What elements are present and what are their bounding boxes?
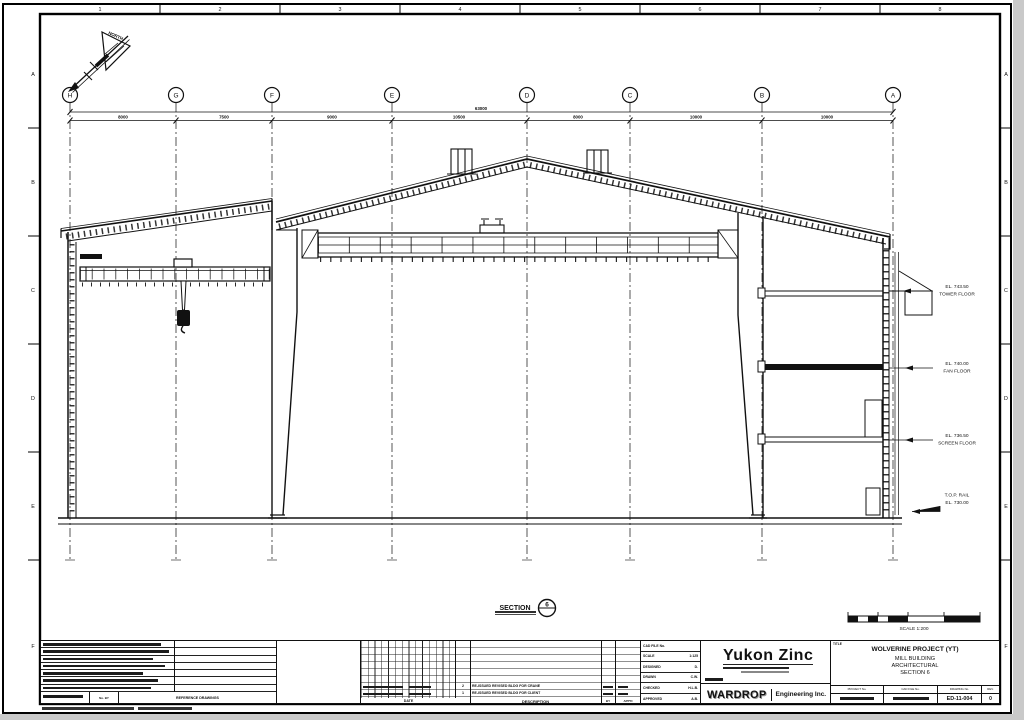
right-letter: F (1004, 644, 1008, 650)
rev-date-entry (409, 693, 431, 695)
north-label: NORTH (108, 30, 124, 41)
left-letter: E (31, 504, 35, 510)
drawing-no-header: DRAWING No. (937, 686, 981, 693)
note-row (41, 670, 276, 677)
cad-no-header: CAD FILE No. (883, 686, 937, 693)
note-row (41, 656, 276, 663)
north-arrow-icon: NORTH (68, 30, 130, 92)
title-block: No. BY REFERENCE DRAWINGS 2 RE-ISSUED RE… (40, 640, 1000, 704)
left-letter: C (31, 288, 35, 294)
top-number: 1 (99, 7, 102, 13)
note-row (41, 663, 276, 670)
grid-bubble-label: F (270, 93, 274, 100)
elevation-label: EL. 743.50 (945, 284, 969, 290)
left-letter: A (31, 72, 35, 78)
top-number: 6 (699, 7, 702, 13)
dimension-lines (68, 109, 896, 124)
elevation-label: T.O.P. RAIL (945, 493, 970, 499)
notes-divider (174, 641, 175, 692)
truss-trolley-icon (480, 219, 504, 233)
top-number: 8 (939, 7, 942, 13)
rev-date-entry (363, 693, 403, 695)
left-letter: D (31, 396, 35, 402)
rev-divider (601, 641, 602, 703)
note-row (41, 685, 276, 692)
info-value: D. (695, 665, 698, 669)
right-letter: E (1004, 504, 1008, 510)
rev-appd-entry (618, 686, 628, 688)
drawing-number: ED-11-004 (937, 694, 981, 705)
description-header: DESCRIPTION (470, 698, 601, 705)
right-letter: A (1004, 72, 1008, 78)
elevation-callouts: EL. 743.50 TOWER FLOOR EL. 740.00 FAN FL… (889, 284, 976, 514)
top-number: 3 (339, 7, 342, 13)
dim-span: 10000 (690, 115, 703, 120)
logo-accent-bar (723, 667, 789, 669)
floor-levels (758, 288, 883, 515)
drawing-title-area: TITLE WOLVERINE PROJECT (YT) MILL BUILDI… (831, 641, 999, 703)
info-value: A.B. (691, 697, 698, 701)
info-label: CHECKED (643, 686, 660, 690)
rev-description: RE-ISSUED REVISED BLDG FOR CRANE (472, 684, 600, 688)
grid-bubble-label: B (760, 93, 764, 100)
rev-by-entry (603, 693, 613, 695)
revision-table: 2 RE-ISSUED REVISED BLDG FOR CRANE 1 RE-… (361, 641, 641, 703)
left-letter: F (31, 644, 35, 650)
section-drawing: 1 2 3 4 5 6 7 8 A B C D E F A B C D E F … (0, 0, 1024, 720)
left-letter: B (31, 180, 35, 186)
rev-divider (615, 641, 616, 703)
company-logo: Yukon Zinc (723, 648, 813, 665)
grid-bubble-label: E (390, 93, 395, 100)
logo-divider (771, 689, 772, 701)
hoist-icon (174, 259, 192, 333)
right-letter: C (1004, 288, 1008, 294)
right-letter: B (1004, 180, 1008, 186)
rev-by-entry (603, 686, 613, 688)
info-label: DRAWN (643, 675, 656, 679)
info-label: SCALE (643, 654, 655, 658)
dim-span: 10000 (821, 115, 834, 120)
revision-number: 0 (981, 694, 999, 705)
firm-logo: WARDROP (707, 689, 767, 701)
drawing-sheet: 1 2 3 4 5 6 7 8 A B C D E F A B C D E F … (0, 0, 1013, 714)
grid-bubble-label: A (891, 93, 896, 100)
rev-divider (470, 641, 471, 703)
project-name: WOLVERINE PROJECT (YT) (831, 646, 999, 653)
date-header: DATE (361, 698, 456, 705)
building-section (58, 149, 932, 524)
tapered-column-left (268, 201, 297, 518)
rev-date-entry (409, 686, 431, 688)
grid-bubble-label: D (525, 93, 530, 100)
note-row (41, 677, 276, 684)
rev-appd-entry (618, 693, 628, 695)
project-no-header: PROJECT No. (831, 686, 883, 693)
roof-vent-icon (583, 150, 612, 173)
grid-bubble-label: C (628, 93, 633, 100)
grid-bubble-label: G (173, 93, 178, 100)
info-value: C.W. (691, 675, 698, 679)
info-label: DESIGNED (643, 665, 661, 669)
rev-header: REV. (981, 686, 999, 693)
dim-span: 9000 (327, 115, 337, 120)
notes-table: No. BY REFERENCE DRAWINGS (41, 641, 277, 703)
note-row (41, 641, 276, 648)
info-label: CAD FILE No. (643, 644, 665, 648)
rev-number: 2 (456, 684, 470, 688)
notes-footer: No. BY REFERENCE DRAWINGS (41, 692, 276, 703)
logo-microtext (705, 678, 723, 681)
elevation-label: SCREEN FLOOR (938, 441, 976, 447)
grid-lines (65, 103, 898, 562)
margin-labels: 1 2 3 4 5 6 7 8 A B C D E F A B C D E F (31, 7, 1008, 650)
appd-header: APP'D (615, 698, 641, 705)
elevation-label: EL. 730.00 (945, 500, 969, 506)
elevation-label: EL. 740.00 (945, 361, 969, 367)
roof-vent-icon (447, 149, 476, 174)
section-marker: SECTION 6 (495, 600, 556, 617)
firm-suffix: Engineering Inc. (776, 691, 827, 698)
grid-bubbles: H G F E D C B A (63, 88, 901, 103)
drawing-title-line: SECTION 6 (831, 670, 999, 676)
note-row (41, 648, 276, 655)
crane-bridge-truss (302, 219, 738, 260)
logo-block: Yukon Zinc WARDROP Engineering Inc. (701, 641, 831, 703)
section-number: 6 (545, 602, 549, 609)
no-by-header: No. BY (89, 692, 118, 703)
drawing-title-line: MILL BUILDING (831, 656, 999, 662)
reference-drawings-header: REFERENCE DRAWINGS (118, 692, 276, 703)
by-header: BY (601, 698, 615, 705)
revision-date-grid (361, 641, 456, 698)
right-letter: D (1004, 396, 1008, 402)
section-label: SECTION (499, 605, 530, 612)
info-column: CAD FILE No. SCALE1:125 DESIGNEDD. DRAWN… (641, 641, 701, 703)
dim-span: 8000 (118, 115, 128, 120)
dim-total: 63000 (475, 106, 488, 111)
dim-span: 7500 (219, 115, 229, 120)
blank-cell (277, 641, 361, 703)
title-label: TITLE (833, 642, 842, 646)
top-number: 4 (459, 7, 462, 13)
elevation-label: EL. 736.50 (945, 433, 969, 439)
drawing-title-line: ARCHITECTURAL (831, 663, 999, 669)
copyright-microtext (42, 707, 192, 710)
scale-bar: SCALE 1:200 (848, 612, 980, 632)
info-label: APPROVED (643, 697, 662, 701)
rev-description: RE-ISSUED REVISED BLDG FOR CLIENT (472, 691, 600, 695)
info-value: H.L.B. (688, 686, 698, 690)
logo-accent-bar-grey (741, 671, 789, 673)
top-number: 7 (819, 7, 822, 13)
elevation-label: TOWER FLOOR (939, 292, 975, 298)
top-number: 5 (579, 7, 582, 13)
info-value: 1:125 (689, 654, 698, 658)
elevation-label: FAN FLOOR (943, 369, 971, 375)
scale-label: SCALE 1:200 (899, 626, 928, 632)
grid-bubble-label: H (68, 93, 73, 100)
dimension-text: 63000 8000 7500 9000 10500 8000 10000 10… (118, 106, 834, 120)
rev-number: 1 (456, 691, 470, 695)
dim-span: 10500 (453, 115, 466, 120)
dim-span: 8000 (573, 115, 583, 120)
rev-date-entry (363, 686, 403, 688)
top-number: 2 (219, 7, 222, 13)
